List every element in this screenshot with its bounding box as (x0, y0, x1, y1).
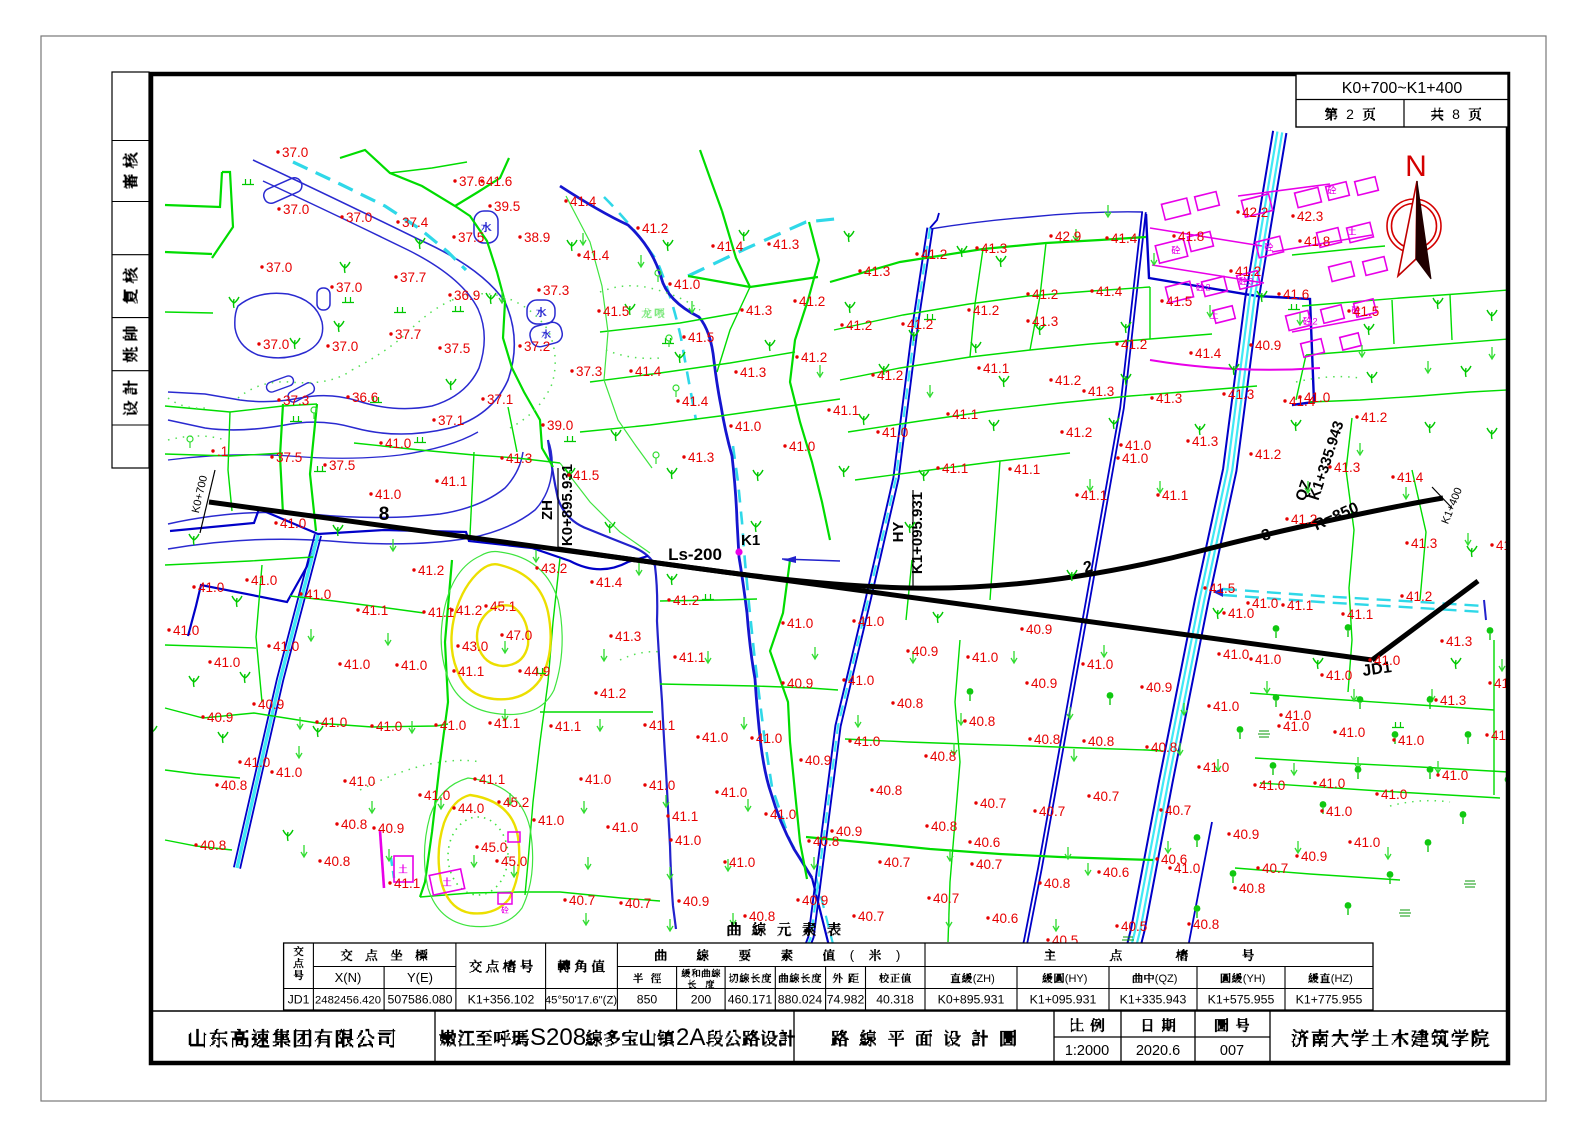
svg-text:880.024: 880.024 (778, 993, 823, 1007)
svg-text:41.3: 41.3 (1446, 634, 1472, 649)
svg-text:41.2: 41.2 (1406, 589, 1432, 604)
svg-text:41.2: 41.2 (1361, 410, 1387, 425)
svg-text:(ZH): (ZH) (973, 973, 995, 985)
svg-text:507586.080: 507586.080 (388, 993, 453, 1007)
svg-text:40.9: 40.9 (802, 893, 828, 908)
svg-text:37.0: 37.0 (283, 202, 309, 217)
svg-text:40.9: 40.9 (207, 710, 233, 725)
svg-text:41.3: 41.3 (864, 264, 890, 279)
svg-text:41.0: 41.0 (1087, 657, 1113, 672)
svg-text:40.7: 40.7 (1262, 861, 1288, 876)
svg-text:Ls-200: Ls-200 (668, 545, 722, 564)
svg-text:37.5: 37.5 (276, 450, 302, 465)
svg-text:40.7: 40.7 (976, 857, 1002, 872)
svg-text:41.2: 41.2 (1066, 425, 1092, 440)
svg-text:41.0: 41.0 (349, 774, 375, 789)
svg-text:41.2: 41.2 (921, 247, 947, 262)
svg-text:41.0: 41.0 (1354, 835, 1380, 850)
svg-text:41.0: 41.0 (214, 655, 240, 670)
svg-text:40.8: 40.8 (969, 714, 995, 729)
svg-text:41.2: 41.2 (673, 593, 699, 608)
svg-text:41.2: 41.2 (1255, 447, 1281, 462)
svg-text:41.1: 41.1 (1287, 598, 1313, 613)
svg-text:41.5: 41.5 (573, 468, 599, 483)
svg-text:37.0: 37.0 (282, 145, 308, 160)
svg-text:41.0: 41.0 (702, 730, 728, 745)
svg-text:K1+335.943: K1+335.943 (1120, 993, 1187, 1007)
svg-text:40.9: 40.9 (1233, 827, 1259, 842)
svg-text:40.6: 40.6 (1103, 865, 1129, 880)
svg-text:37.5: 37.5 (329, 458, 355, 473)
svg-text:41.5: 41.5 (1166, 294, 1192, 309)
svg-text:41.2: 41.2 (600, 686, 626, 701)
svg-text:41.1: 41.1 (833, 403, 859, 418)
svg-text:41.5: 41.5 (603, 304, 629, 319)
svg-text:41.0: 41.0 (1259, 778, 1285, 793)
svg-text:41.1: 41.1 (1347, 607, 1373, 622)
svg-text:40.7: 40.7 (569, 893, 595, 908)
svg-text:K0+700~K1+400: K0+700~K1+400 (1342, 80, 1463, 97)
svg-text:2: 2 (1312, 316, 1317, 327)
svg-text:41.4: 41.4 (682, 394, 709, 409)
svg-text:40.5: 40.5 (1121, 919, 1147, 934)
svg-text:40.7: 40.7 (980, 796, 1006, 811)
svg-text:2A: 2A (676, 1024, 705, 1051)
svg-text:41.0: 41.0 (1252, 596, 1278, 611)
svg-text:): ) (896, 948, 900, 963)
svg-text:41.1: 41.1 (672, 809, 698, 824)
svg-text:460.171: 460.171 (728, 993, 773, 1007)
svg-text:41.0: 41.0 (280, 516, 306, 531)
svg-text:41.0: 41.0 (538, 813, 564, 828)
svg-text:(YH): (YH) (1243, 973, 1266, 985)
svg-text:41.3: 41.3 (773, 237, 799, 252)
svg-text:40.8: 40.8 (221, 778, 247, 793)
svg-text:41.6: 41.6 (486, 174, 512, 189)
svg-text:40.8: 40.8 (200, 838, 226, 853)
svg-text:45.0: 45.0 (481, 840, 507, 855)
svg-text:40.7: 40.7 (933, 891, 959, 906)
svg-text:40.9: 40.9 (1146, 680, 1172, 695)
svg-text:41.4: 41.4 (1096, 284, 1123, 299)
svg-text:41.0: 41.0 (854, 734, 880, 749)
svg-text:41.1: 41.1 (394, 876, 420, 891)
svg-text:40.6: 40.6 (992, 911, 1018, 926)
svg-text:40.9: 40.9 (912, 644, 938, 659)
svg-text:41.0: 41.0 (1442, 768, 1468, 783)
svg-text:41.3: 41.3 (1440, 693, 1466, 708)
svg-text:41.0: 41.0 (385, 436, 411, 451)
svg-text:41.2: 41.2 (973, 303, 999, 318)
svg-text:41.4: 41.4 (1195, 346, 1222, 361)
svg-text:40.8: 40.8 (749, 909, 775, 924)
svg-text:41.4: 41.4 (570, 194, 597, 209)
svg-text:40.9: 40.9 (787, 676, 813, 691)
svg-text:40.318: 40.318 (876, 993, 914, 1007)
svg-text:HY: HY (890, 522, 907, 543)
svg-text:41.3: 41.3 (1411, 536, 1437, 551)
svg-text:41.3: 41.3 (740, 365, 766, 380)
svg-text:41.1: 41.1 (479, 772, 505, 787)
svg-text:41.0: 41.0 (244, 755, 270, 770)
svg-text:41.4: 41.4 (1397, 470, 1424, 485)
svg-text:40.9: 40.9 (1255, 338, 1281, 353)
svg-text:(HZ): (HZ) (1331, 973, 1353, 985)
svg-text:41.2: 41.2 (846, 318, 872, 333)
svg-text:41.0: 41.0 (675, 833, 701, 848)
svg-text:37.2: 37.2 (524, 339, 550, 354)
svg-text:2482456.420: 2482456.420 (315, 995, 381, 1007)
svg-text:41.0: 41.0 (787, 616, 813, 631)
svg-text:41.1: 41.1 (494, 716, 520, 731)
svg-text:37.4: 37.4 (402, 215, 429, 230)
svg-text:41.2: 41.2 (799, 294, 825, 309)
svg-text:41.4: 41.4 (635, 364, 662, 379)
svg-text:37.0: 37.0 (332, 339, 358, 354)
svg-text:39.5: 39.5 (494, 199, 520, 214)
svg-text:2: 2 (1205, 282, 1210, 293)
svg-text:37.3: 37.3 (283, 393, 309, 408)
svg-text:41.4: 41.4 (596, 575, 623, 590)
svg-text:41.0: 41.0 (972, 650, 998, 665)
svg-text:41.1: 41.1 (362, 603, 388, 618)
svg-text:40.7: 40.7 (884, 855, 910, 870)
svg-text:K1: K1 (741, 532, 760, 549)
svg-text:JD1: JD1 (288, 993, 310, 1007)
svg-text:42.3: 42.3 (1297, 209, 1323, 224)
svg-text:41.0: 41.0 (674, 277, 700, 292)
svg-text:41.8: 41.8 (1304, 234, 1330, 249)
svg-text:41.0: 41.0 (344, 657, 370, 672)
svg-text:40.9: 40.9 (836, 824, 862, 839)
svg-text:41.3: 41.3 (746, 303, 772, 318)
svg-text:45.2: 45.2 (503, 795, 529, 810)
svg-text:41.1: 41.1 (1014, 462, 1040, 477)
svg-text:41.0: 41.0 (1223, 647, 1249, 662)
svg-text:Y(E): Y(E) (407, 970, 433, 985)
svg-text:40.9: 40.9 (378, 821, 404, 836)
svg-text:40.9: 40.9 (1031, 676, 1057, 691)
svg-text:41.0: 41.0 (612, 820, 638, 835)
svg-text:40.7: 40.7 (1093, 789, 1119, 804)
svg-text:41.1: 41.1 (983, 361, 1009, 376)
svg-text:40.9: 40.9 (1301, 849, 1327, 864)
svg-text:41.0: 41.0 (251, 573, 277, 588)
svg-text:40.9: 40.9 (258, 697, 284, 712)
svg-text:37.5: 37.5 (444, 341, 470, 356)
svg-text:K1+356.102: K1+356.102 (468, 993, 535, 1007)
svg-text:40.7: 40.7 (1165, 803, 1191, 818)
svg-text:45°50'17.6"(Z): 45°50'17.6"(Z) (545, 995, 617, 1007)
svg-text:850: 850 (637, 993, 658, 1007)
svg-text:38.9: 38.9 (524, 230, 550, 245)
svg-text:8: 8 (1452, 106, 1460, 122)
svg-text:ZH: ZH (539, 500, 556, 520)
svg-text:40.8: 40.8 (1151, 740, 1177, 755)
svg-text:41.1: 41.1 (942, 461, 968, 476)
svg-text:41.0: 41.0 (1255, 652, 1281, 667)
svg-text:40.8: 40.8 (1044, 876, 1070, 891)
svg-text:37.0: 37.0 (346, 210, 372, 225)
svg-text:40.8: 40.8 (1239, 881, 1265, 896)
svg-text:41.0: 41.0 (321, 715, 347, 730)
svg-text:41.1: 41.1 (679, 650, 705, 665)
svg-text:1:2000: 1:2000 (1065, 1043, 1109, 1059)
svg-text:41.0: 41.0 (1122, 451, 1148, 466)
svg-text:40.6: 40.6 (974, 835, 1000, 850)
svg-text:41.0: 41.0 (1203, 760, 1229, 775)
svg-text:X(N): X(N) (335, 970, 362, 985)
svg-text:41.3: 41.3 (1192, 434, 1218, 449)
svg-text:41.0: 41.0 (729, 855, 755, 870)
svg-text:41.2: 41.2 (907, 317, 933, 332)
svg-text:44.9: 44.9 (524, 664, 550, 679)
svg-text:40.8: 40.8 (931, 819, 957, 834)
svg-text:8: 8 (379, 504, 390, 525)
svg-text:43.0: 43.0 (462, 639, 488, 654)
svg-text:41.0: 41.0 (858, 614, 884, 629)
svg-text:37.0: 37.0 (336, 280, 362, 295)
svg-text:K0+895.931: K0+895.931 (938, 993, 1005, 1007)
svg-text:41.4: 41.4 (717, 239, 744, 254)
svg-text:41.0: 41.0 (305, 587, 331, 602)
svg-text:43.2: 43.2 (541, 561, 567, 576)
svg-text:41.0: 41.0 (424, 788, 450, 803)
svg-text:37.1: 37.1 (487, 392, 513, 407)
svg-text:41.0: 41.0 (173, 623, 199, 638)
svg-text:41.2: 41.2 (642, 221, 668, 236)
svg-text:(: ( (850, 948, 855, 963)
svg-text:41.3: 41.3 (1156, 391, 1182, 406)
svg-text:2: 2 (1346, 106, 1354, 122)
svg-text:S208: S208 (530, 1024, 586, 1051)
svg-text:41.3: 41.3 (1334, 460, 1360, 475)
svg-text:41.3: 41.3 (506, 451, 532, 466)
svg-text:37.0: 37.0 (266, 260, 292, 275)
svg-text:37.7: 37.7 (395, 327, 421, 342)
svg-text:41.0: 41.0 (735, 419, 761, 434)
svg-text:37.1: 37.1 (438, 413, 464, 428)
svg-text:41.1: 41.1 (428, 605, 454, 620)
svg-text:37.7: 37.7 (400, 270, 426, 285)
svg-text:41.0: 41.0 (649, 778, 675, 793)
svg-text:41.0: 41.0 (1319, 776, 1345, 791)
svg-text:41.0: 41.0 (1374, 653, 1400, 668)
svg-text:K1+775.955: K1+775.955 (1296, 993, 1363, 1007)
svg-text:41.3: 41.3 (615, 629, 641, 644)
svg-text:41.0: 41.0 (1304, 390, 1330, 405)
svg-text:41.4: 41.4 (1111, 231, 1138, 246)
svg-text:41.2: 41.2 (1291, 512, 1317, 527)
svg-text:41.6: 41.6 (1283, 287, 1309, 302)
svg-text:41.0: 41.0 (848, 673, 874, 688)
svg-text:41.3: 41.3 (1228, 387, 1254, 402)
svg-text:41.1: 41.1 (1081, 488, 1107, 503)
svg-text:41.0: 41.0 (1174, 861, 1200, 876)
svg-text:41.0: 41.0 (1381, 787, 1407, 802)
svg-text:37.3: 37.3 (543, 283, 569, 298)
svg-text:41.0: 41.0 (1228, 606, 1254, 621)
svg-text:42.9: 42.9 (1055, 229, 1081, 244)
svg-text:41.0: 41.0 (721, 785, 747, 800)
svg-text:41.0: 41.0 (376, 719, 402, 734)
svg-text:40.8: 40.8 (897, 696, 923, 711)
svg-text:41.0: 41.0 (1213, 699, 1239, 714)
svg-text:41.0: 41.0 (198, 580, 224, 595)
svg-text:47.0: 47.0 (506, 628, 532, 643)
svg-text:41.0: 41.0 (1398, 733, 1424, 748)
svg-text:44.0: 44.0 (458, 801, 484, 816)
svg-text:41.1: 41.1 (555, 719, 581, 734)
svg-text:41.0: 41.0 (1326, 804, 1352, 819)
svg-text:41.0: 41.0 (1326, 668, 1352, 683)
svg-text:37.5: 37.5 (458, 230, 484, 245)
svg-text:41.2: 41.2 (1032, 287, 1058, 302)
svg-text:41.2: 41.2 (1235, 264, 1261, 279)
svg-text:2020.6: 2020.6 (1136, 1043, 1180, 1059)
svg-text:45.0: 45.0 (501, 854, 527, 869)
svg-text:37.3: 37.3 (576, 364, 602, 379)
svg-text:41.1: 41.1 (441, 474, 467, 489)
svg-text:42.2: 42.2 (1242, 205, 1268, 220)
svg-text:39.0: 39.0 (547, 418, 573, 433)
svg-text:41.1: 41.1 (458, 664, 484, 679)
svg-text:40.7: 40.7 (858, 909, 884, 924)
svg-text:41.2: 41.2 (877, 368, 903, 383)
svg-text:41.1: 41.1 (952, 407, 978, 422)
svg-text:41.0: 41.0 (401, 658, 427, 673)
svg-text:45.1: 45.1 (490, 599, 516, 614)
svg-text:41.8: 41.8 (1178, 229, 1204, 244)
svg-text:41.1: 41.1 (1162, 488, 1188, 503)
svg-text:(HY): (HY) (1065, 973, 1088, 985)
svg-text:40.8: 40.8 (341, 817, 367, 832)
svg-text:41.1: 41.1 (649, 718, 675, 733)
svg-text:41.2: 41.2 (456, 603, 482, 618)
svg-text:40.8: 40.8 (813, 834, 839, 849)
svg-text:40.8: 40.8 (930, 749, 956, 764)
svg-text:36.6: 36.6 (352, 390, 378, 405)
svg-text:41.2: 41.2 (801, 350, 827, 365)
svg-text:41.0: 41.0 (375, 487, 401, 502)
svg-text:40.8: 40.8 (1034, 732, 1060, 747)
svg-text:.1: .1 (217, 444, 228, 459)
svg-text:40.8: 40.8 (1088, 734, 1114, 749)
svg-text:41.0: 41.0 (440, 718, 466, 733)
svg-text:74.982: 74.982 (827, 993, 865, 1007)
svg-text:41.3: 41.3 (688, 450, 714, 465)
svg-text:41.5: 41.5 (1209, 581, 1235, 596)
svg-text:41.2: 41.2 (1121, 337, 1147, 352)
svg-text:40.7: 40.7 (625, 896, 651, 911)
svg-text:(QZ): (QZ) (1155, 973, 1178, 985)
svg-text:007: 007 (1220, 1043, 1244, 1059)
svg-text:41.0: 41.0 (789, 439, 815, 454)
svg-text:36.9: 36.9 (454, 288, 480, 303)
svg-text:K1+095.931: K1+095.931 (1030, 993, 1097, 1007)
svg-text:K1+095.931: K1+095.931 (909, 492, 926, 574)
svg-text:40.8: 40.8 (324, 854, 350, 869)
svg-text:41.0: 41.0 (756, 731, 782, 746)
svg-text:37.0: 37.0 (263, 337, 289, 352)
svg-text:40.8: 40.8 (876, 783, 902, 798)
svg-text:41.4: 41.4 (583, 248, 610, 263)
svg-text:41.2: 41.2 (1055, 373, 1081, 388)
svg-text:N: N (1405, 150, 1427, 183)
svg-text:41.0: 41.0 (276, 765, 302, 780)
svg-text:200: 200 (691, 993, 712, 1007)
svg-text:40.9: 40.9 (1026, 622, 1052, 637)
svg-text:41.3: 41.3 (981, 241, 1007, 256)
svg-text:41.0: 41.0 (882, 425, 908, 440)
svg-text:41.3: 41.3 (1032, 314, 1058, 329)
svg-text:K1+575.955: K1+575.955 (1208, 993, 1275, 1007)
svg-text:40.7: 40.7 (1039, 804, 1065, 819)
svg-text:41.5: 41.5 (688, 330, 714, 345)
svg-text:41.0: 41.0 (770, 807, 796, 822)
svg-text:40.9: 40.9 (683, 894, 709, 909)
svg-text:41.0: 41.0 (1339, 725, 1365, 740)
svg-text:40.8: 40.8 (1193, 917, 1219, 932)
svg-text:41.5: 41.5 (1353, 304, 1379, 319)
svg-text:41.2: 41.2 (418, 563, 444, 578)
svg-text:40.9: 40.9 (805, 753, 831, 768)
svg-text:41.0: 41.0 (273, 639, 299, 654)
svg-text:41.3: 41.3 (1088, 384, 1114, 399)
svg-text:41.0: 41.0 (1283, 719, 1309, 734)
svg-text:41.0: 41.0 (585, 772, 611, 787)
